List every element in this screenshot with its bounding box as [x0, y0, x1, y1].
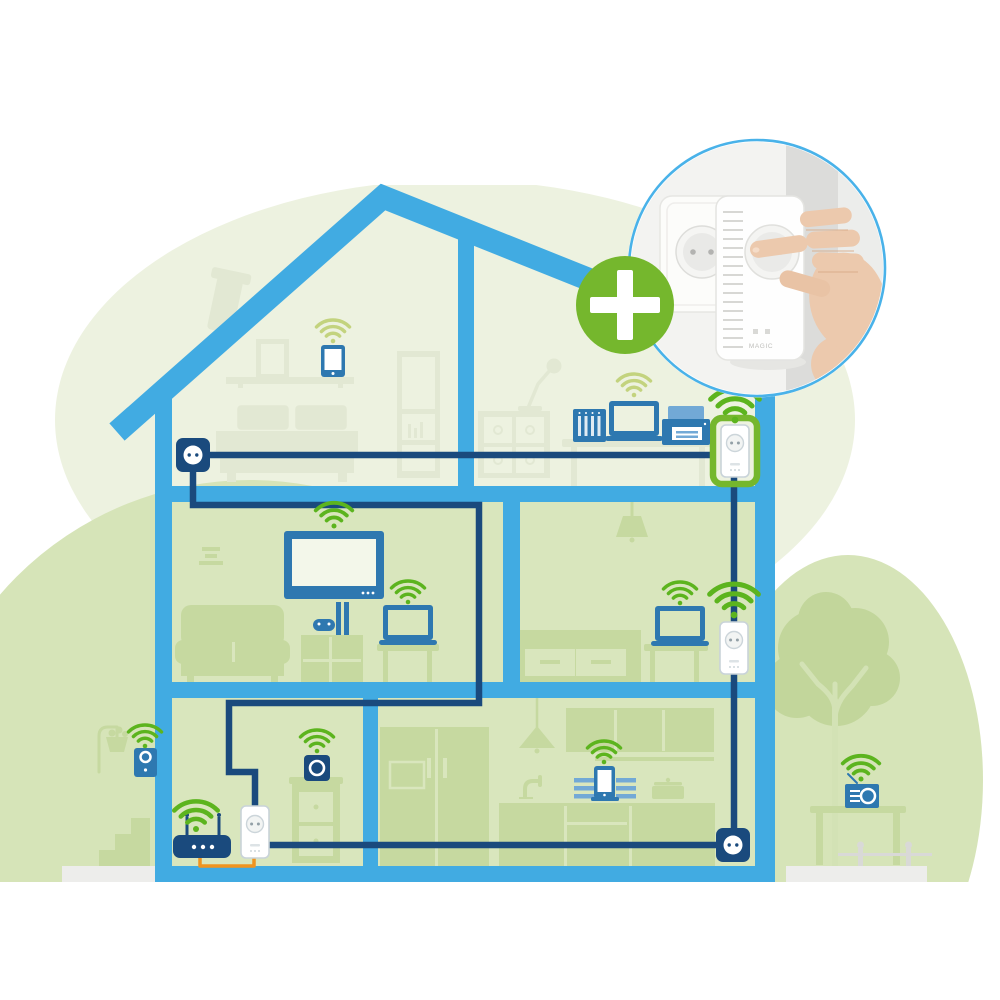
dresser	[516, 626, 641, 686]
doorbell-icon	[134, 748, 157, 777]
attic-floor	[155, 486, 775, 502]
attic-divider-wall	[458, 228, 474, 486]
sofa	[175, 605, 290, 686]
power-outlet-icon	[176, 438, 210, 472]
powerline-adapter-icon	[241, 806, 269, 858]
kitchen-counter	[499, 799, 715, 866]
ground-left-furniture	[289, 777, 343, 863]
middle-divider-wall	[503, 502, 520, 682]
ground-floor	[155, 866, 775, 882]
tv-cabinet	[301, 635, 363, 688]
plus-badge	[576, 256, 674, 354]
ground-right	[786, 866, 927, 882]
powerline-adapter-icon	[720, 622, 748, 674]
nas-icon	[573, 409, 606, 442]
ground-left	[62, 866, 155, 882]
speaker-icon	[304, 755, 330, 781]
smartphone-icon	[321, 345, 345, 377]
printer-icon	[662, 406, 710, 445]
power-outlet-icon	[716, 828, 750, 862]
tv-icon	[284, 531, 384, 599]
left-wall	[155, 398, 172, 882]
adapter-label: MAGIC	[749, 343, 773, 350]
powerline-adapter-icon	[721, 425, 749, 477]
laptop-icon	[379, 605, 437, 645]
upper-cabinets	[566, 708, 714, 761]
ground-divider-wall	[363, 698, 378, 866]
laptop-icon	[651, 606, 709, 646]
middle-floor	[155, 682, 775, 698]
laptop-icon	[605, 401, 663, 441]
powerline-home-diagram: MAGIC	[0, 0, 1000, 1000]
